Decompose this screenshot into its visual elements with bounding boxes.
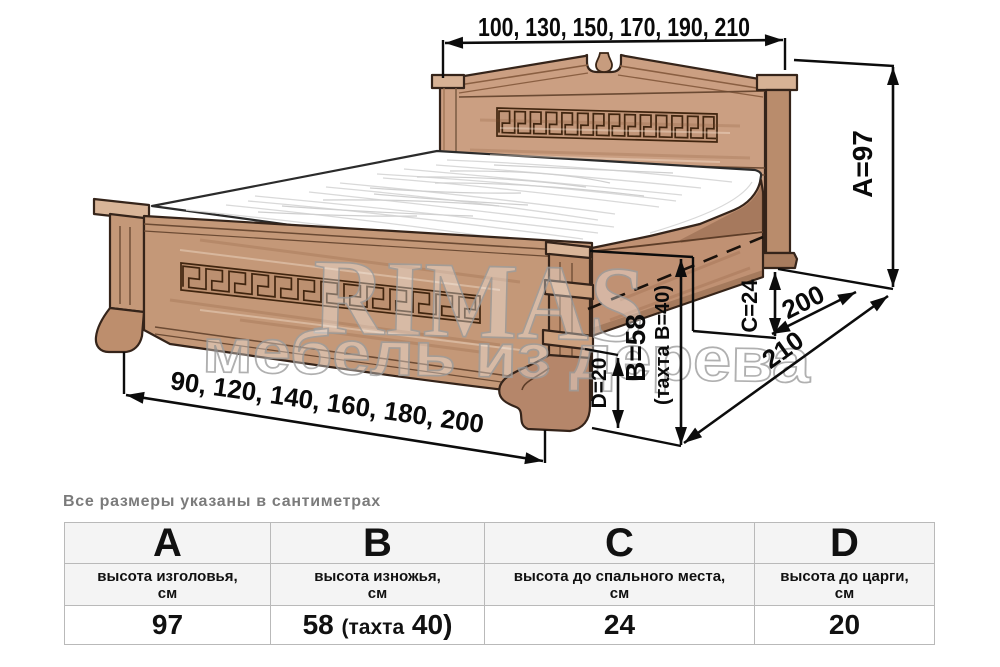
svg-text:200: 200 (777, 279, 829, 325)
svg-text:А=97: А=97 (847, 130, 878, 198)
svg-text:С=24: С=24 (737, 279, 762, 333)
svg-text:100, 130, 150, 170, 190, 210: 100, 130, 150, 170, 190, 210 (478, 12, 750, 42)
svg-text:(тахта В=40): (тахта В=40) (652, 285, 674, 405)
svg-text:В=58: В=58 (620, 314, 651, 382)
svg-text:D=20: D=20 (588, 358, 611, 409)
